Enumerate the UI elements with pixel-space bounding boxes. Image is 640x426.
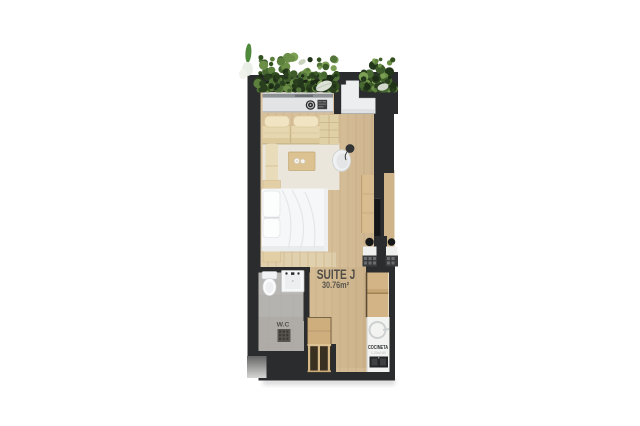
svg-text:W.C: W.C xyxy=(277,321,290,328)
svg-text:COCINETA: COCINETA xyxy=(368,345,388,351)
svg-text:30.76m²: 30.76m² xyxy=(322,280,349,290)
svg-text:1.20x0.60: 1.20x0.60 xyxy=(371,351,386,355)
